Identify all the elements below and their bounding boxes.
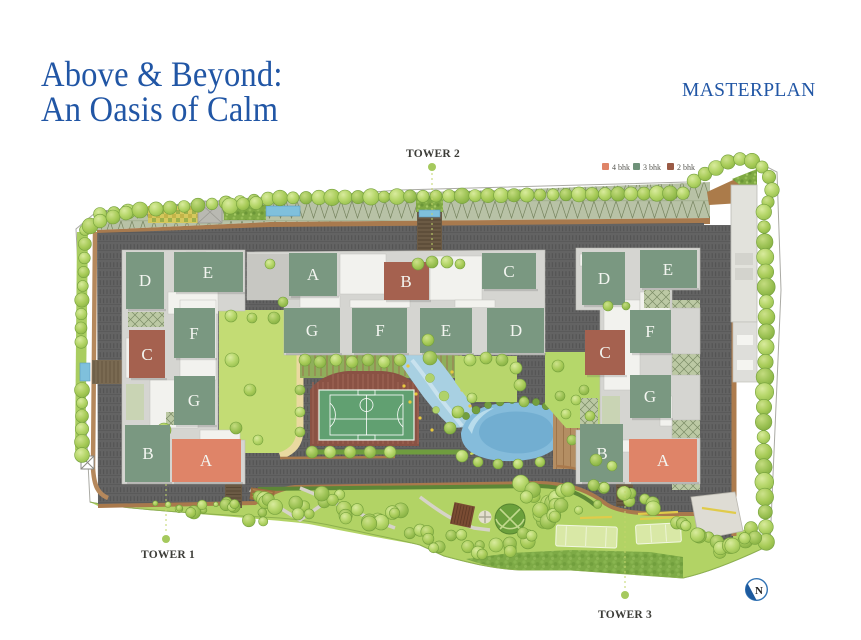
svg-text:B: B [400,272,411,291]
svg-text:E: E [441,321,451,340]
svg-text:A: A [657,451,670,470]
svg-text:E: E [663,260,673,279]
svg-text:4 bhk: 4 bhk [612,163,630,172]
svg-text:N: N [755,585,763,597]
svg-text:3 bhk: 3 bhk [643,163,661,172]
svg-text:D: D [598,269,610,288]
svg-text:E: E [203,263,213,282]
svg-text:G: G [644,387,656,406]
svg-text:F: F [375,321,384,340]
svg-text:C: C [599,343,610,362]
svg-text:G: G [306,321,318,340]
svg-text:C: C [141,345,152,364]
svg-text:F: F [189,324,198,343]
svg-text:A: A [307,265,320,284]
svg-text:TOWER 1: TOWER 1 [141,549,195,561]
svg-text:2 bhk: 2 bhk [677,163,695,172]
svg-text:D: D [510,321,522,340]
svg-text:B: B [142,444,153,463]
svg-text:A: A [200,451,213,470]
svg-text:D: D [139,271,151,290]
svg-text:G: G [188,391,200,410]
svg-text:TOWER 2: TOWER 2 [406,148,460,160]
svg-text:F: F [645,322,654,341]
svg-text:C: C [503,262,514,281]
svg-text:TOWER 3: TOWER 3 [598,609,652,621]
